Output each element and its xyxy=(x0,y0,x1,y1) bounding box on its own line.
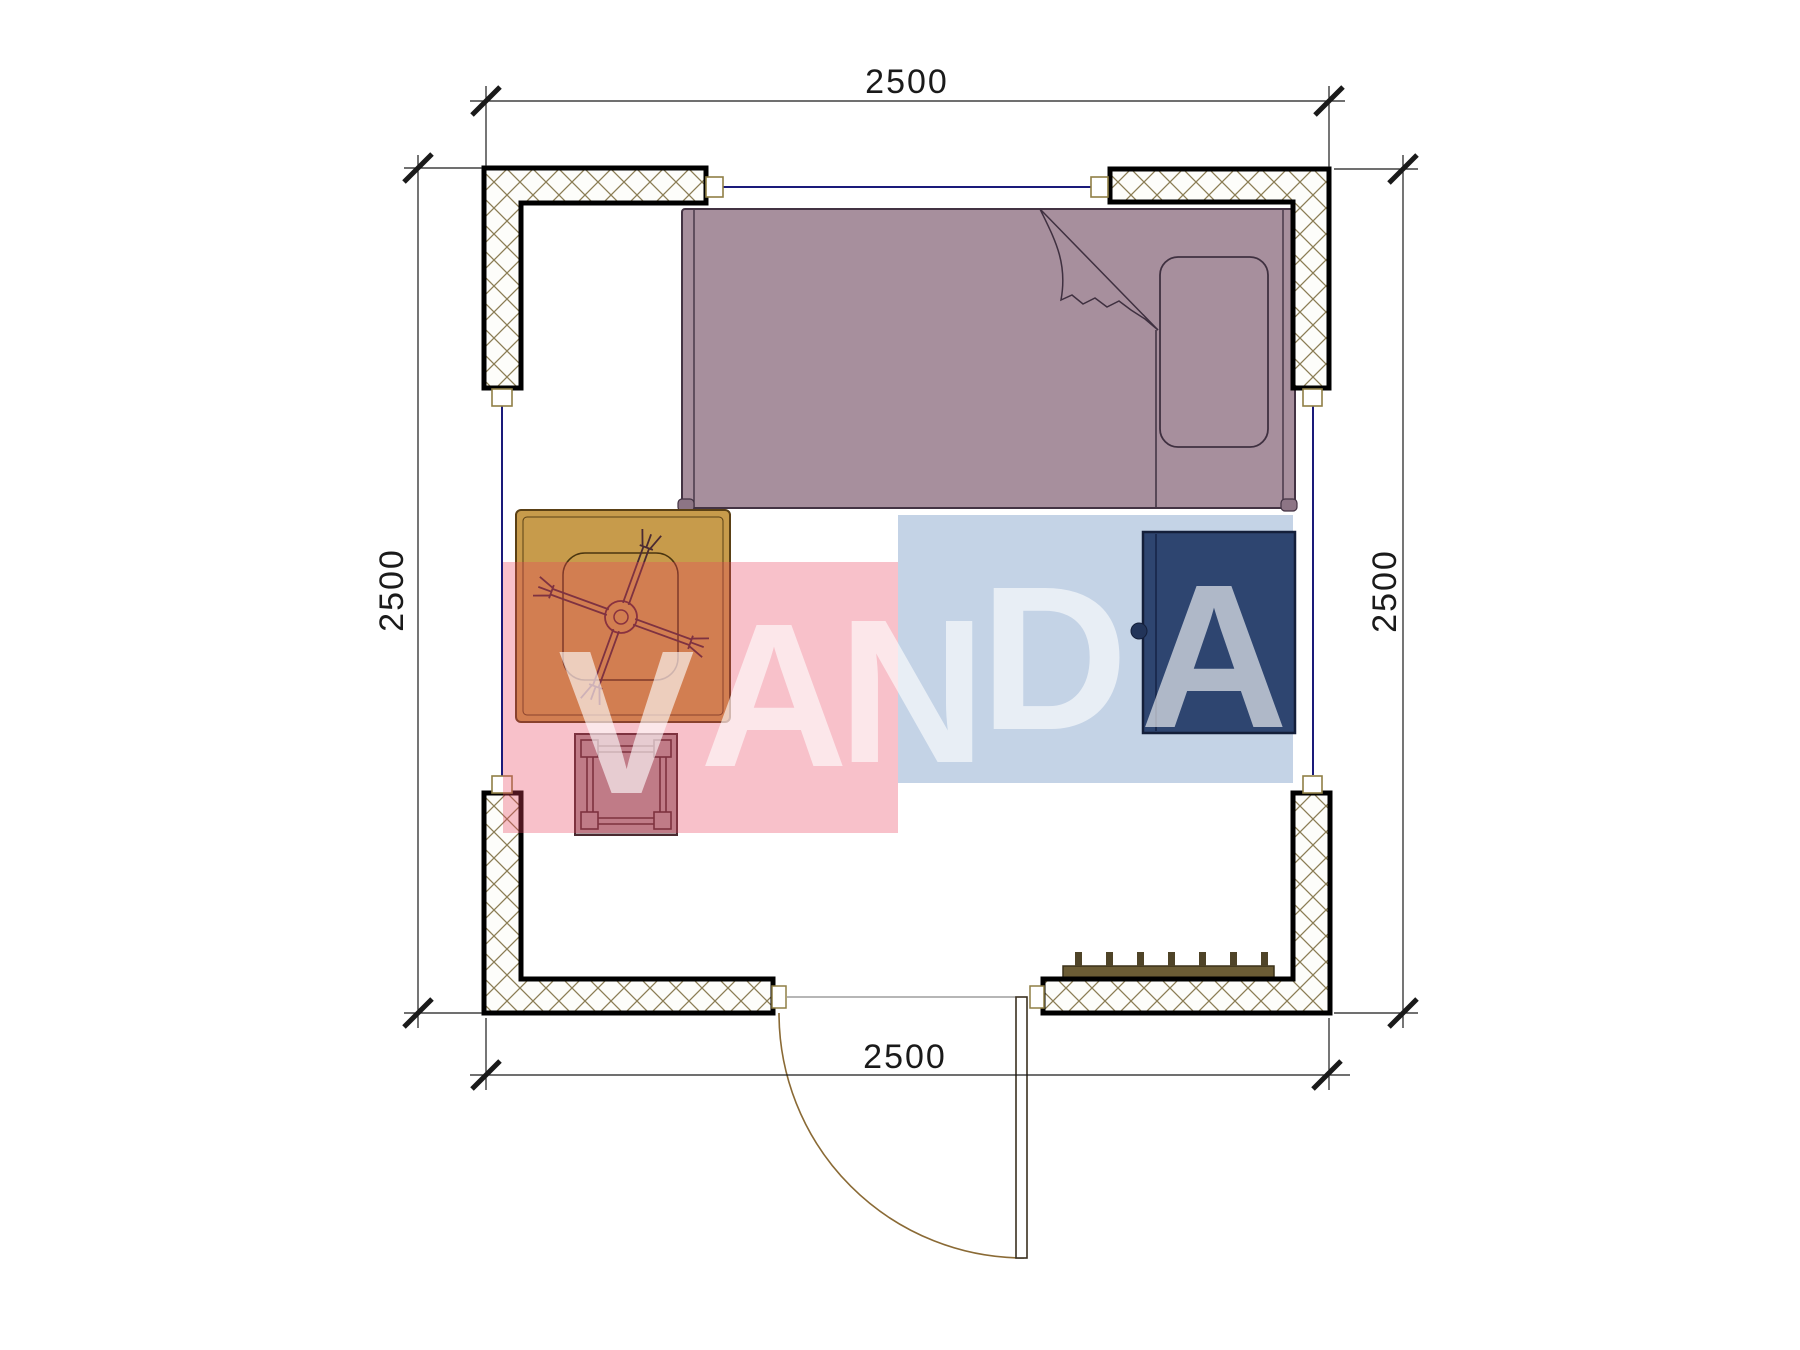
watermark-letter: D xyxy=(980,544,1128,773)
watermark-letter: V xyxy=(558,608,695,837)
watermark-letter: A xyxy=(700,581,848,810)
floor-plan-canvas: 2500 2500 2500 2500 V A N D A xyxy=(0,0,1800,1350)
door xyxy=(772,986,1044,1258)
dimension-label-bottom: 2500 xyxy=(863,1038,947,1076)
dimension-left xyxy=(404,154,482,1028)
dimension-label-right: 2500 xyxy=(1366,549,1404,633)
window-frame-box xyxy=(492,389,512,406)
floor-plan-page: 2500 2500 2500 2500 V A N D A xyxy=(0,0,1800,1350)
dimension-label-left: 2500 xyxy=(373,548,411,632)
pillow xyxy=(1160,257,1268,447)
watermark-letter: N xyxy=(838,577,986,806)
window-frame-box xyxy=(1091,177,1108,197)
bed-leg xyxy=(1281,499,1297,511)
radiator-fin xyxy=(1137,952,1144,966)
radiator-fin xyxy=(1075,952,1082,966)
door-jamb xyxy=(1030,986,1044,1008)
dimension-label-top: 2500 xyxy=(865,63,949,101)
door-leaf xyxy=(1016,997,1027,1258)
window-frame-box xyxy=(1303,389,1322,406)
radiator-fin xyxy=(1199,952,1206,966)
radiator xyxy=(1063,952,1274,979)
single-bed xyxy=(678,209,1297,511)
radiator-fin xyxy=(1230,952,1237,966)
door-jamb xyxy=(772,986,786,1008)
window-frame-box xyxy=(706,177,723,197)
window-frame-box xyxy=(1303,776,1322,793)
radiator-fin xyxy=(1168,952,1175,966)
wall-bottom-right xyxy=(1043,793,1330,1013)
radiator-fin xyxy=(1106,952,1113,966)
radiator-fin xyxy=(1261,952,1268,966)
wall-top-left xyxy=(484,168,706,388)
watermark-letter: A xyxy=(1140,542,1288,771)
